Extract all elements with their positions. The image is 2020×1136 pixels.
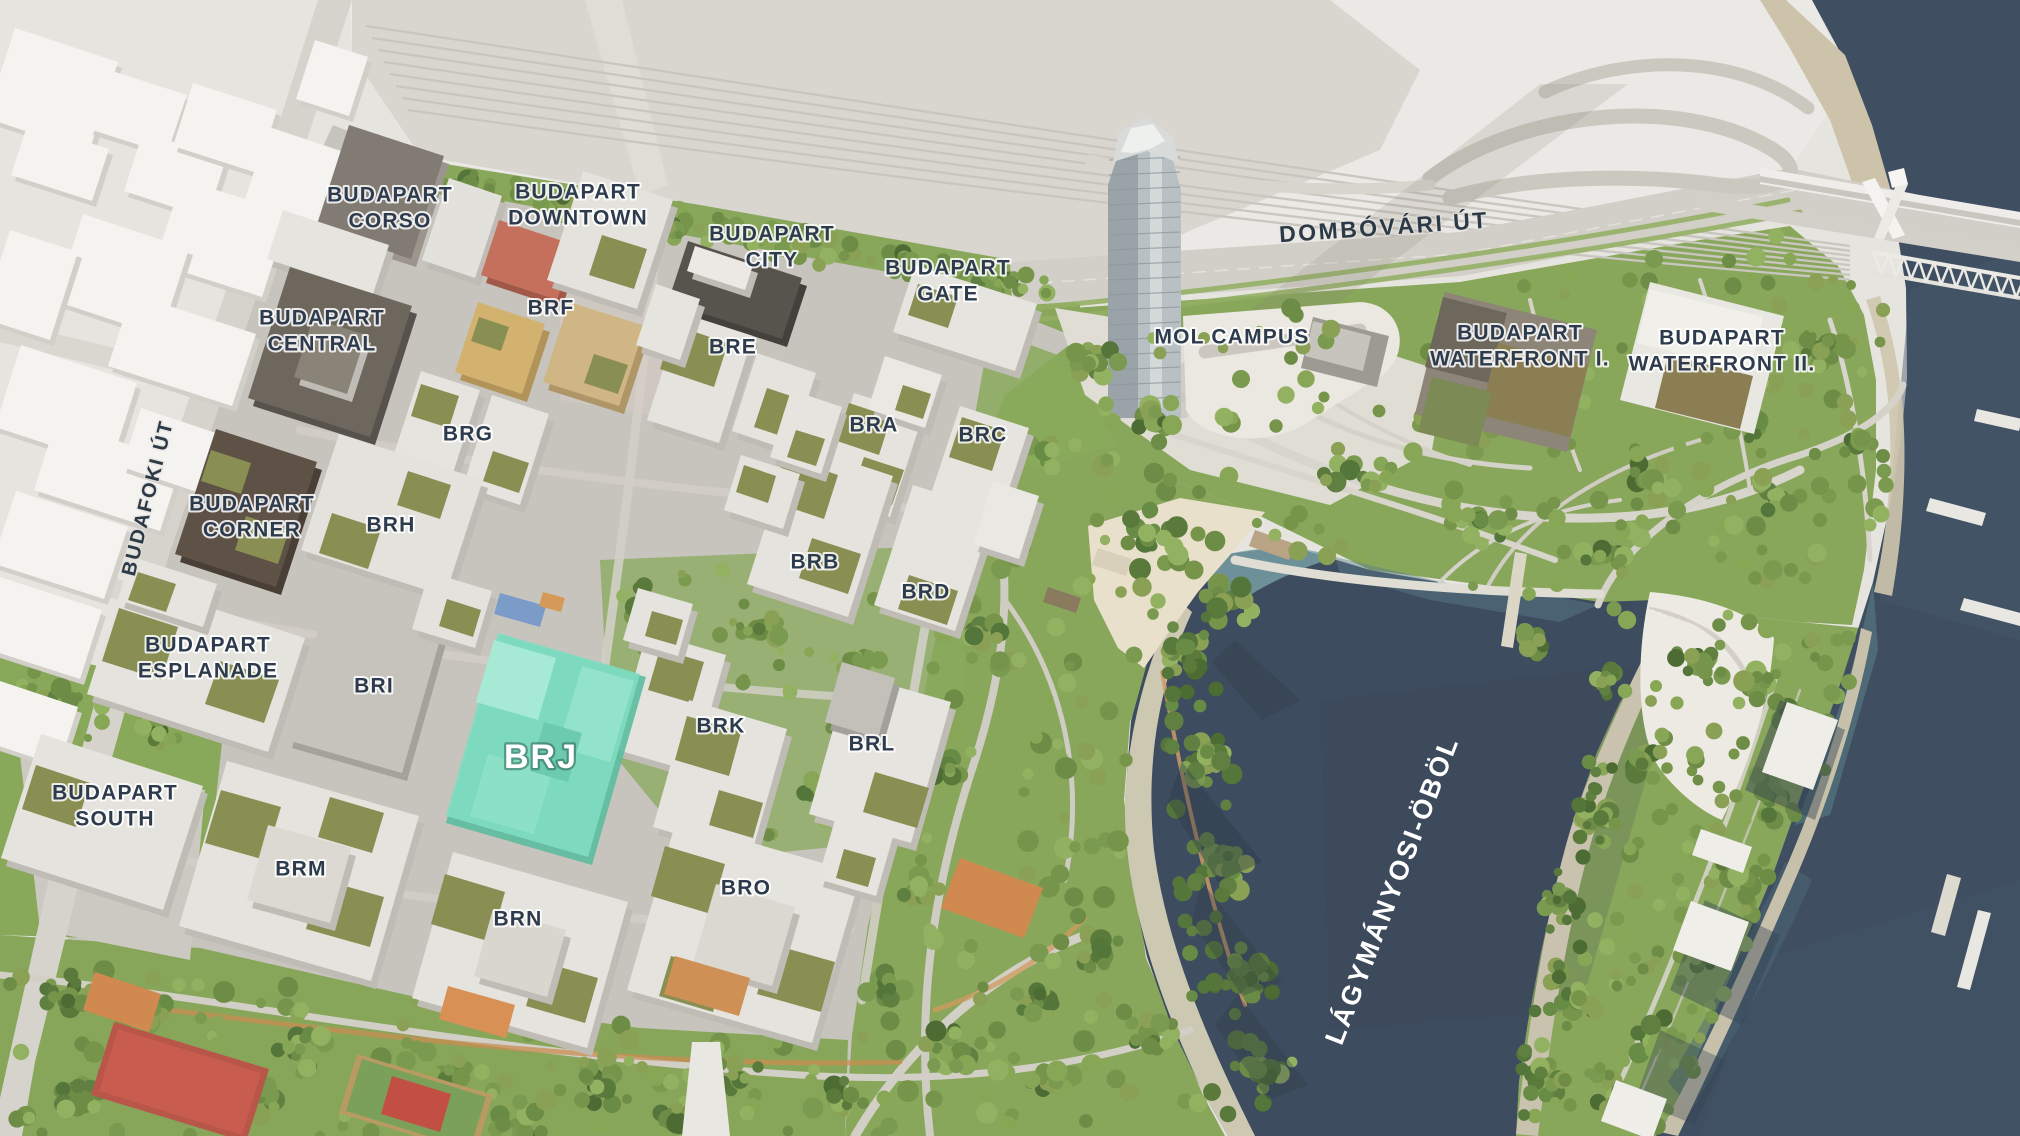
- svg-text:BUDAPART: BUDAPART: [145, 634, 271, 657]
- svg-text:BUDAPART: BUDAPART: [1457, 322, 1583, 345]
- svg-text:CENTRAL: CENTRAL: [268, 333, 377, 356]
- svg-text:WATERFRONT I.: WATERFRONT I.: [1430, 348, 1610, 371]
- svg-text:BRE: BRE: [709, 336, 757, 359]
- svg-text:BRK: BRK: [696, 715, 745, 738]
- svg-text:BRG: BRG: [443, 423, 493, 446]
- svg-text:SOUTH: SOUTH: [75, 808, 155, 831]
- svg-text:BRF: BRF: [528, 297, 575, 320]
- svg-text:DOWNTOWN: DOWNTOWN: [508, 207, 648, 230]
- svg-text:ESPLANADE: ESPLANADE: [138, 660, 278, 683]
- svg-text:GATE: GATE: [917, 283, 979, 306]
- svg-text:BRL: BRL: [849, 733, 896, 756]
- svg-text:BUDAPART: BUDAPART: [515, 181, 641, 204]
- svg-text:CORSO: CORSO: [348, 210, 431, 233]
- svg-text:WATERFRONT II.: WATERFRONT II.: [1629, 353, 1816, 376]
- svg-text:BUDAPART: BUDAPART: [52, 782, 178, 805]
- svg-text:BRI: BRI: [354, 675, 394, 698]
- svg-text:BUDAPART: BUDAPART: [1659, 327, 1785, 350]
- svg-text:BUDAPART: BUDAPART: [709, 223, 835, 246]
- svg-text:CORNER: CORNER: [203, 519, 301, 542]
- svg-text:BRJ: BRJ: [504, 738, 578, 776]
- svg-text:BRD: BRD: [901, 581, 950, 604]
- svg-text:BUDAPART: BUDAPART: [259, 307, 385, 330]
- svg-text:BRA: BRA: [849, 414, 898, 437]
- svg-text:BUDAPART: BUDAPART: [885, 257, 1011, 280]
- svg-text:BRN: BRN: [493, 908, 542, 931]
- svg-text:BRC: BRC: [958, 424, 1007, 447]
- svg-text:MOL CAMPUS: MOL CAMPUS: [1154, 326, 1309, 349]
- svg-text:BUDAPART: BUDAPART: [189, 493, 315, 516]
- svg-text:BRO: BRO: [721, 877, 771, 900]
- svg-text:BRH: BRH: [366, 514, 415, 537]
- svg-text:CITY: CITY: [746, 249, 799, 272]
- svg-text:BRB: BRB: [790, 551, 839, 574]
- svg-text:BUDAPART: BUDAPART: [327, 184, 453, 207]
- svg-text:BRM: BRM: [275, 858, 326, 881]
